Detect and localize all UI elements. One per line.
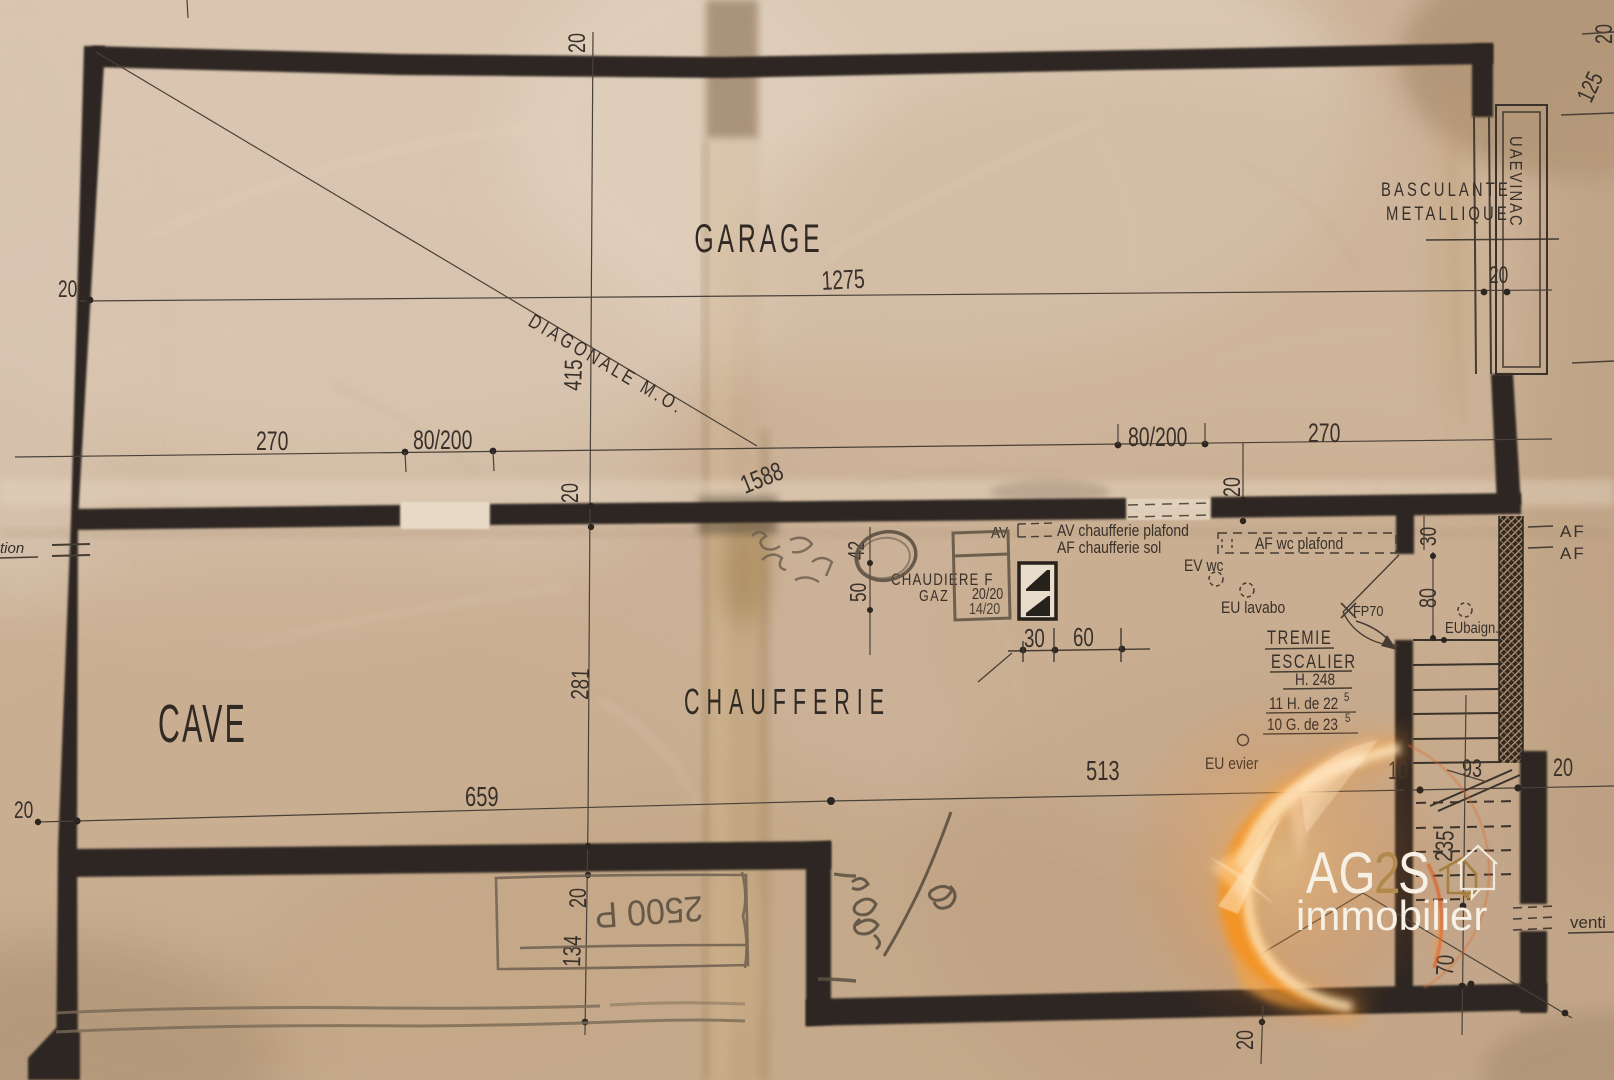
svg-text:20: 20 [558, 483, 584, 503]
svg-text:AF: AF [1560, 522, 1586, 541]
svg-text:30: 30 [1024, 623, 1045, 653]
svg-text:H. 248: H. 248 [1295, 671, 1335, 690]
svg-text:270: 270 [256, 426, 288, 456]
svg-text:UAEVINAC: UAEVINAC [1506, 136, 1526, 228]
svg-text:FP70: FP70 [1353, 602, 1384, 619]
svg-text:30: 30 [1417, 527, 1442, 546]
svg-text:5: 5 [1344, 691, 1349, 704]
svg-text:14/20: 14/20 [969, 601, 1000, 619]
svg-text:BASCULANTE: BASCULANTE [1381, 179, 1511, 200]
svg-text:20: 20 [565, 33, 591, 53]
svg-text:281: 281 [565, 668, 594, 700]
svg-text:80: 80 [1416, 588, 1442, 608]
svg-text:AV: AV [991, 525, 1008, 542]
svg-text:ESCALIER: ESCALIER [1271, 651, 1357, 672]
svg-text:50: 50 [847, 583, 872, 602]
svg-text:tion: tion [0, 540, 24, 557]
svg-text:METALLIQUE: METALLIQUE [1386, 203, 1510, 224]
svg-text:2500 P: 2500 P [593, 888, 704, 935]
svg-text:20: 20 [1592, 24, 1614, 44]
svg-text:venti: venti [1570, 913, 1606, 932]
svg-text:20: 20 [58, 276, 77, 302]
svg-text:80/200: 80/200 [413, 425, 472, 455]
svg-text:AF: AF [1560, 544, 1586, 563]
svg-text:20: 20 [1220, 477, 1246, 497]
svg-text:AF wc plafond: AF wc plafond [1255, 535, 1343, 554]
svg-text:CAVE: CAVE [158, 694, 247, 754]
svg-text:415: 415 [558, 359, 587, 391]
svg-text:CHAUFFERIE: CHAUFFERIE [684, 682, 891, 722]
svg-text:immobilier: immobilier [1296, 892, 1487, 939]
svg-text:20: 20 [14, 797, 33, 823]
svg-text:60: 60 [1073, 622, 1094, 652]
svg-text:20: 20 [1489, 262, 1508, 288]
svg-text:EU lavabo: EU lavabo [1221, 599, 1285, 618]
svg-text:20: 20 [566, 888, 592, 908]
svg-text:GARAGE: GARAGE [694, 217, 823, 261]
svg-text:AV chaufferie plafond: AV chaufferie plafond [1057, 522, 1189, 541]
svg-text:80/200: 80/200 [1128, 422, 1187, 452]
svg-text:270: 270 [1308, 418, 1340, 448]
svg-text:513: 513 [1086, 756, 1120, 787]
svg-text:EUbaign.: EUbaign. [1445, 620, 1499, 637]
svg-text:1275: 1275 [821, 264, 866, 296]
svg-text:GAZ: GAZ [919, 588, 949, 606]
svg-text:TREMIE: TREMIE [1267, 627, 1332, 648]
svg-text:AF chaufferie sol: AF chaufferie sol [1057, 539, 1161, 558]
svg-text:EV wc: EV wc [1184, 557, 1224, 576]
svg-text:659: 659 [465, 782, 499, 813]
svg-text:20: 20 [1553, 753, 1573, 782]
svg-text:134: 134 [557, 935, 586, 967]
